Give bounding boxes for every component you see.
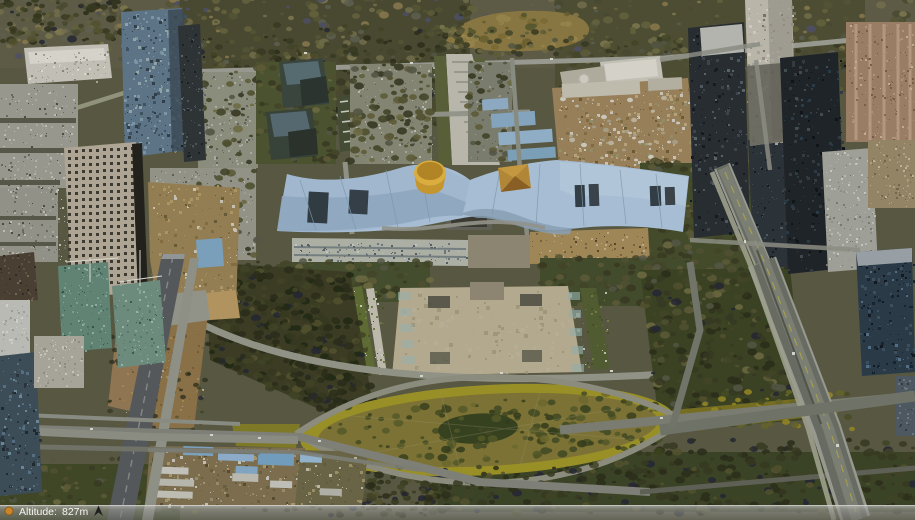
svg-text:827m: 827m [62,506,89,518]
svg-text:Altitude:: Altitude: [19,506,57,518]
